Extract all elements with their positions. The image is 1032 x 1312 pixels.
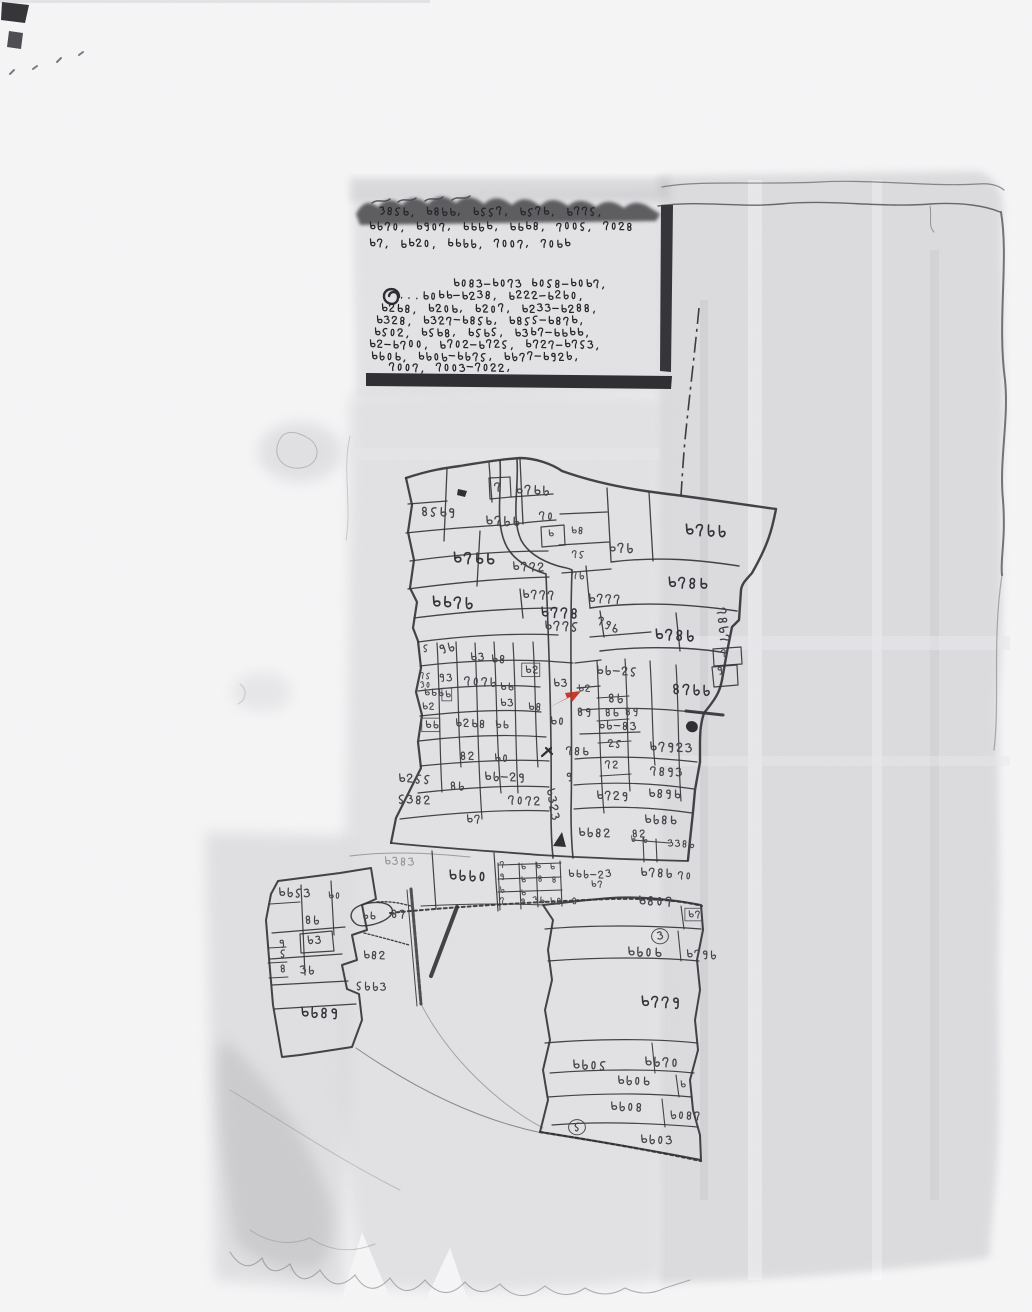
scanned-page xyxy=(0,0,1032,1312)
right-border-bar xyxy=(660,205,673,372)
scan-noise-overlay xyxy=(0,0,1032,1312)
cadastral-map-scan xyxy=(0,0,1032,1312)
